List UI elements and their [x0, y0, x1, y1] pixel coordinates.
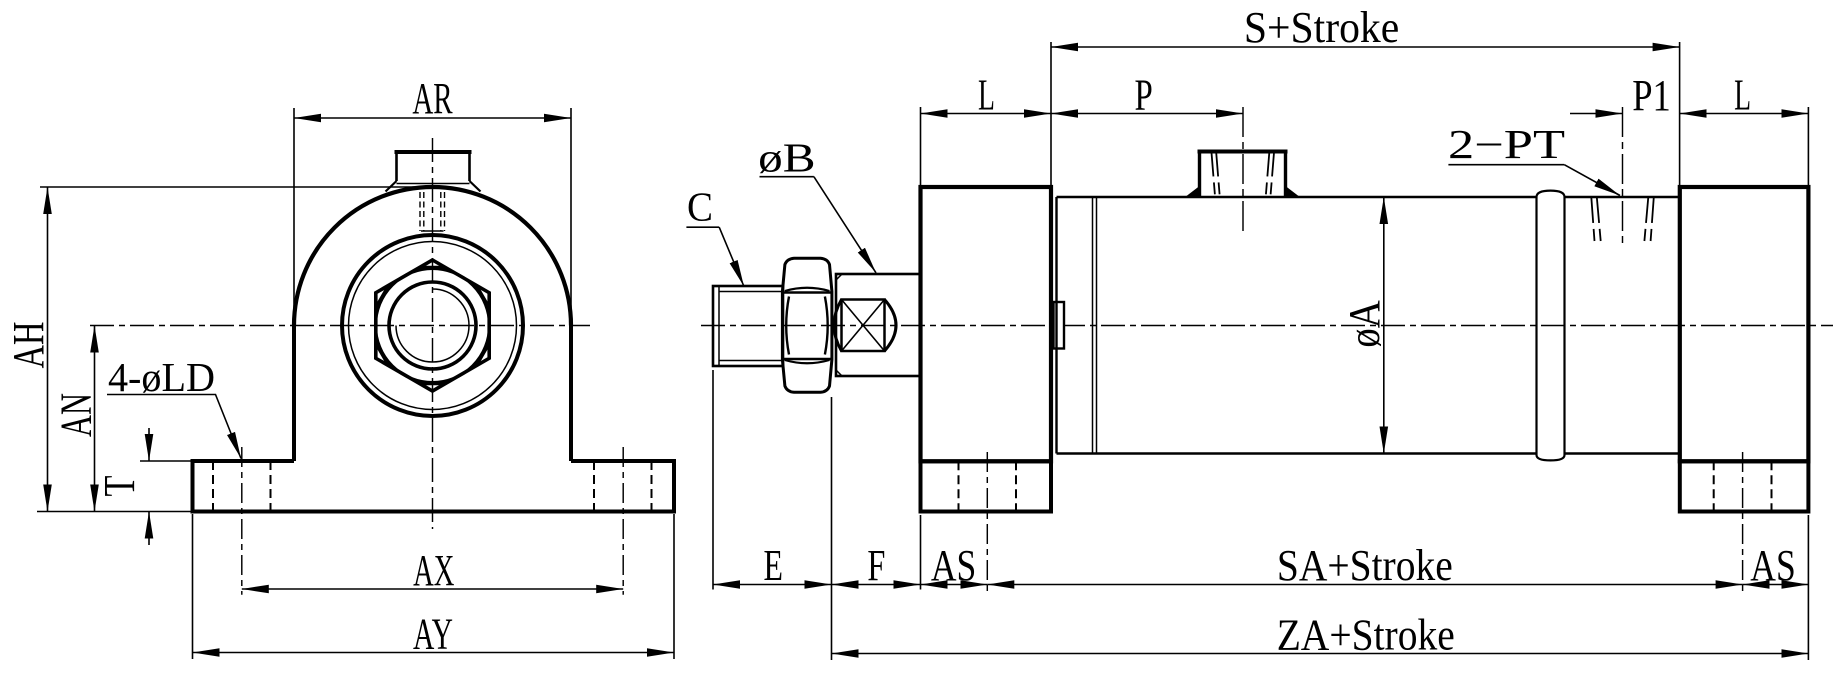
svg-text:AS: AS [1750, 540, 1795, 590]
svg-text:L: L [978, 70, 995, 119]
svg-text:P: P [1134, 71, 1152, 120]
svg-text:AN: AN [52, 393, 101, 437]
svg-text:AS: AS [931, 540, 976, 590]
svg-text:C: C [687, 184, 713, 230]
svg-text:SA+Stroke: SA+Stroke [1277, 542, 1453, 590]
svg-text:4-øLD: 4-øLD [108, 355, 215, 400]
svg-text:ZA+Stroke: ZA+Stroke [1277, 611, 1455, 659]
svg-text:AY: AY [413, 611, 453, 659]
svg-text:øA: øA [1340, 300, 1389, 347]
svg-text:2−PT: 2−PT [1448, 122, 1565, 167]
svg-text:L: L [1734, 70, 1751, 119]
svg-text:P1: P1 [1632, 71, 1671, 120]
svg-text:AH: AH [5, 321, 53, 368]
svg-text:F: F [867, 542, 885, 590]
svg-text:øB: øB [758, 135, 815, 180]
svg-text:AX: AX [413, 547, 454, 596]
svg-text:T: T [95, 476, 144, 497]
svg-text:AR: AR [412, 75, 452, 123]
svg-text:S+Stroke: S+Stroke [1244, 4, 1399, 52]
svg-text:E: E [764, 542, 783, 590]
